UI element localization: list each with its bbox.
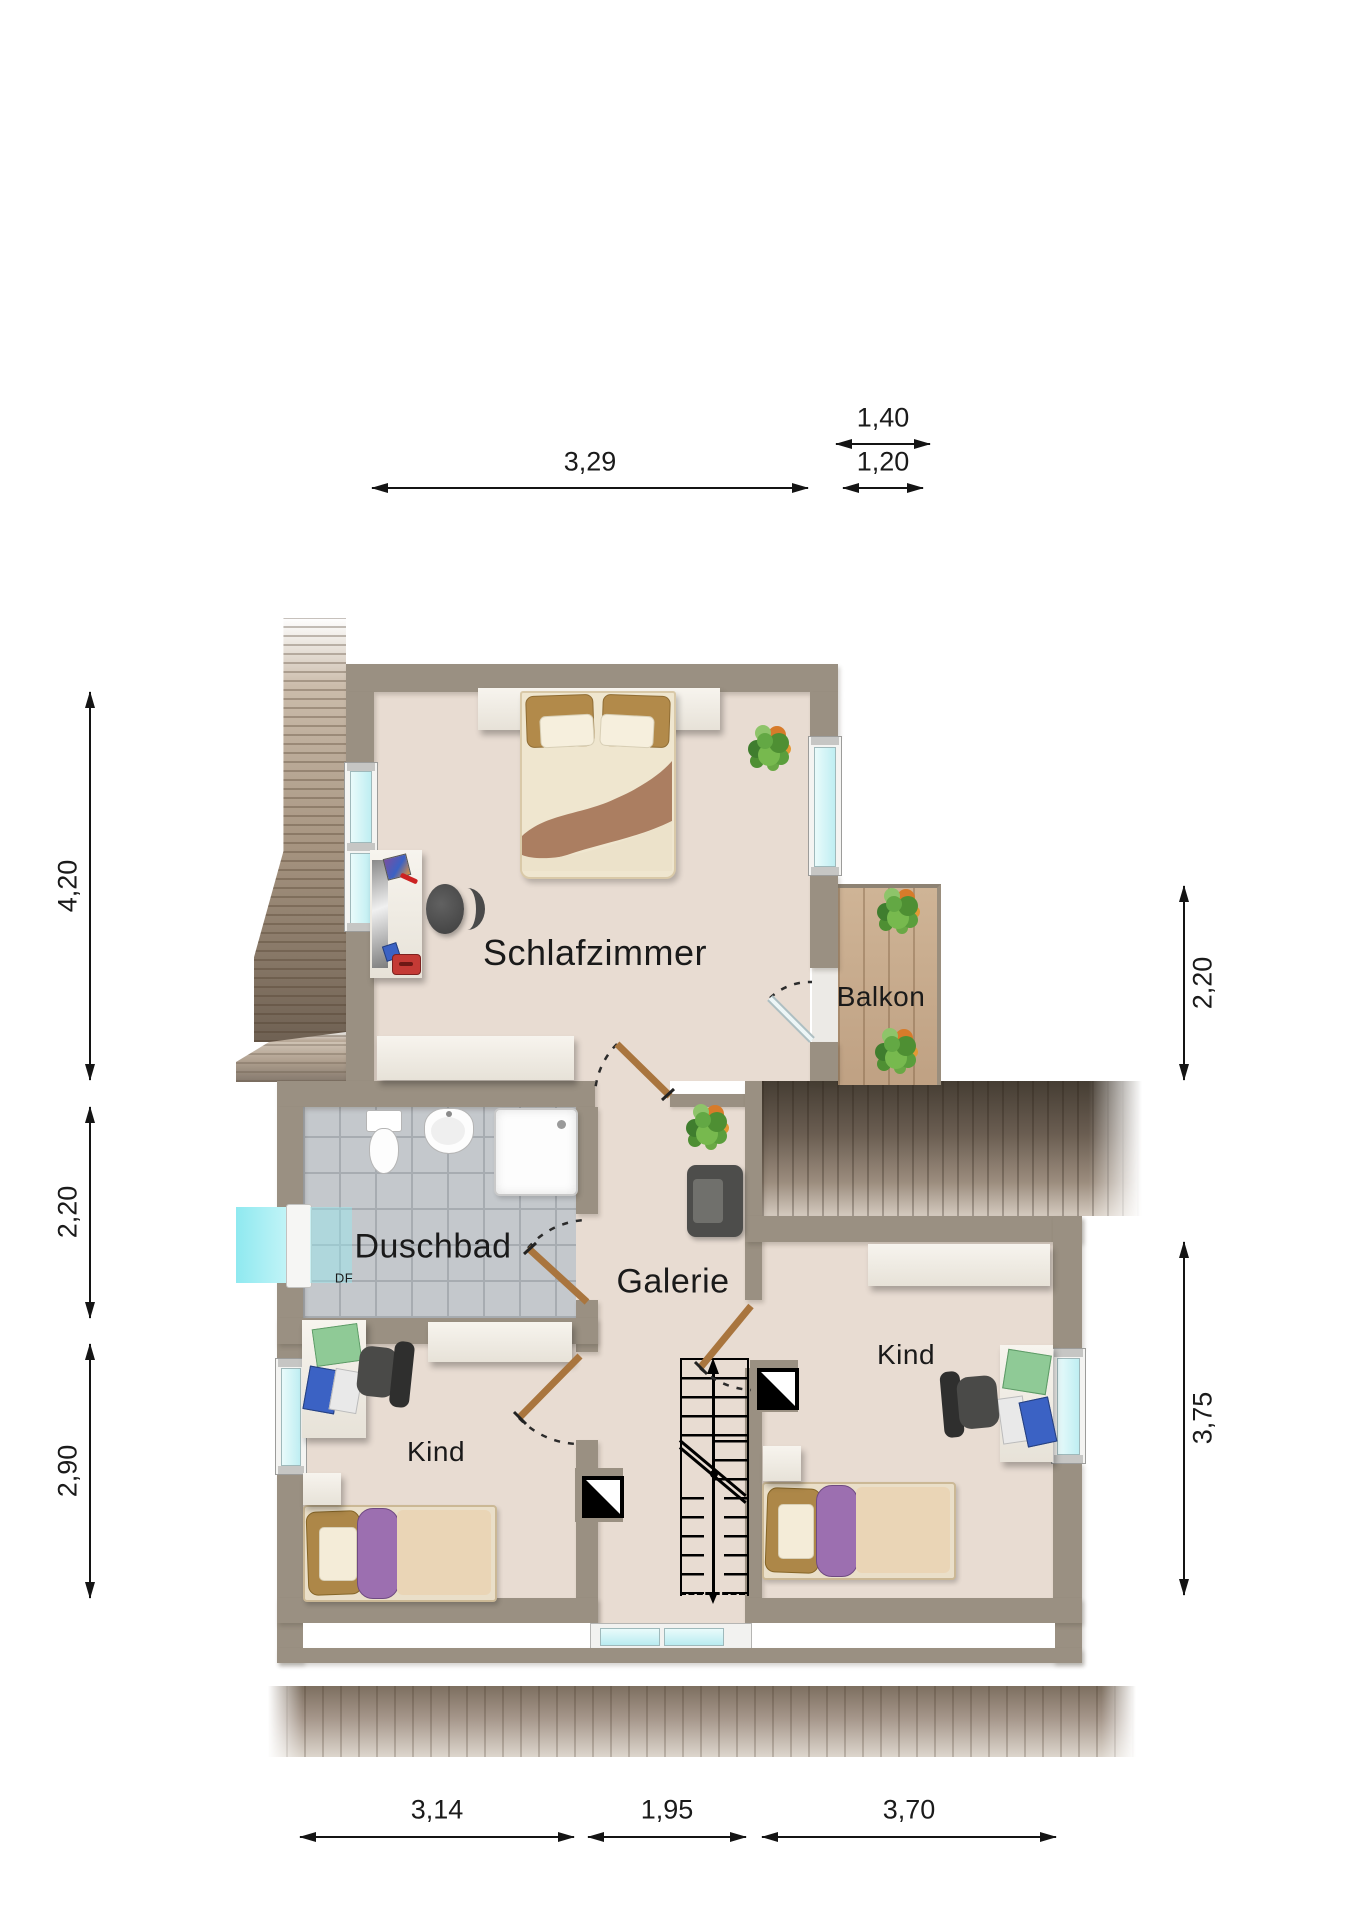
- double-bed: [520, 691, 676, 879]
- wall: [745, 1081, 762, 1300]
- dimension-label: 2,20: [1188, 957, 1219, 1010]
- bedroom-door-opening: [595, 1081, 670, 1107]
- desk: [1000, 1345, 1053, 1462]
- child-left-door-opening: [576, 1352, 598, 1440]
- plant-icon: [695, 1112, 711, 1128]
- balcony-plant-icon: [886, 896, 902, 912]
- single-bed: [303, 1505, 497, 1602]
- armchair: [687, 1165, 743, 1237]
- window: [664, 1628, 724, 1646]
- dimension-label: 3,14: [411, 1795, 464, 1826]
- toilet-bowl: [369, 1128, 399, 1174]
- plant-icon: [757, 733, 773, 749]
- dimension-label: 1,95: [641, 1795, 694, 1826]
- dimension-label: 3,29: [564, 447, 617, 478]
- dimension-line: [372, 487, 808, 489]
- dimension-line: [89, 1344, 91, 1598]
- bedside-cabinet: [763, 1446, 801, 1481]
- dimension-label: 1,20: [857, 447, 910, 478]
- wall: [277, 1081, 595, 1107]
- roof-band-bottom: [268, 1686, 1136, 1757]
- dimension-line: [762, 1836, 1056, 1838]
- dimension-line: [89, 692, 91, 1080]
- stool-arm: [450, 888, 485, 930]
- roof-window: [236, 1207, 288, 1283]
- office-chair: [355, 1337, 422, 1409]
- dimension-line: [89, 1107, 91, 1318]
- room-label-balkon: Balkon: [837, 981, 926, 1013]
- balcony-plant-icon: [884, 1036, 900, 1052]
- window: [600, 1628, 660, 1646]
- wall: [745, 1598, 1082, 1623]
- wall: [810, 692, 838, 736]
- wall: [745, 1216, 1082, 1242]
- wall: [346, 692, 374, 762]
- sideboard: [377, 1036, 574, 1080]
- chimney-symbol: [575, 1468, 623, 1522]
- dimension-line: [1183, 886, 1185, 1080]
- dimension-label: 3,70: [883, 1795, 936, 1826]
- dimension-label: 3,75: [1188, 1392, 1219, 1445]
- wall: [1053, 1216, 1082, 1348]
- roof-wedge-left: [236, 1032, 346, 1082]
- balcony-door-threshold: [812, 968, 838, 1042]
- window: [808, 736, 842, 876]
- roof-window-frame: [286, 1204, 312, 1288]
- window: [1051, 1348, 1086, 1464]
- staircase-cut-line: [680, 1592, 745, 1595]
- dressing-table: [370, 850, 422, 978]
- roof-window-label: DF: [335, 1271, 353, 1286]
- dimension-line: [1183, 1242, 1185, 1595]
- bath-door-opening: [576, 1214, 598, 1300]
- dimension-label: 4,20: [53, 860, 84, 913]
- wall-shelf: [868, 1244, 1050, 1286]
- wall: [810, 874, 838, 968]
- bedside-cabinet: [303, 1473, 341, 1505]
- roof-band-middle: [762, 1081, 1142, 1216]
- office-chair: [935, 1365, 1003, 1440]
- dimension-label: 2,20: [53, 1186, 84, 1239]
- wall: [670, 1094, 747, 1107]
- room-label-schlafzimmer: Schlafzimmer: [483, 932, 707, 974]
- chimney-symbol: [750, 1360, 798, 1412]
- wall: [277, 1648, 1082, 1663]
- wall: [277, 1473, 303, 1663]
- dimension-label: 1,40: [857, 403, 910, 434]
- dimension-line: [843, 487, 923, 489]
- dimension-line: [300, 1836, 574, 1838]
- room-label-kind-left: Kind: [407, 1436, 465, 1468]
- wall: [1053, 1462, 1082, 1663]
- room-label-duschbad: Duschbad: [354, 1228, 511, 1267]
- dimension-label: 2,90: [53, 1445, 84, 1498]
- sink: [424, 1108, 474, 1154]
- wall-shelf: [428, 1322, 572, 1362]
- folder: [312, 1323, 363, 1367]
- single-bed: [762, 1482, 956, 1580]
- roof-strip-left: [254, 618, 346, 1042]
- shower: [494, 1108, 578, 1196]
- dimension-line: [836, 443, 930, 445]
- dimension-line: [588, 1836, 746, 1838]
- wall: [810, 1042, 838, 1081]
- folder: [1002, 1349, 1052, 1395]
- staircase: [680, 1358, 749, 1596]
- room-label-kind-right: Kind: [877, 1339, 935, 1371]
- wall: [576, 1107, 598, 1214]
- room-label-galerie: Galerie: [616, 1263, 729, 1302]
